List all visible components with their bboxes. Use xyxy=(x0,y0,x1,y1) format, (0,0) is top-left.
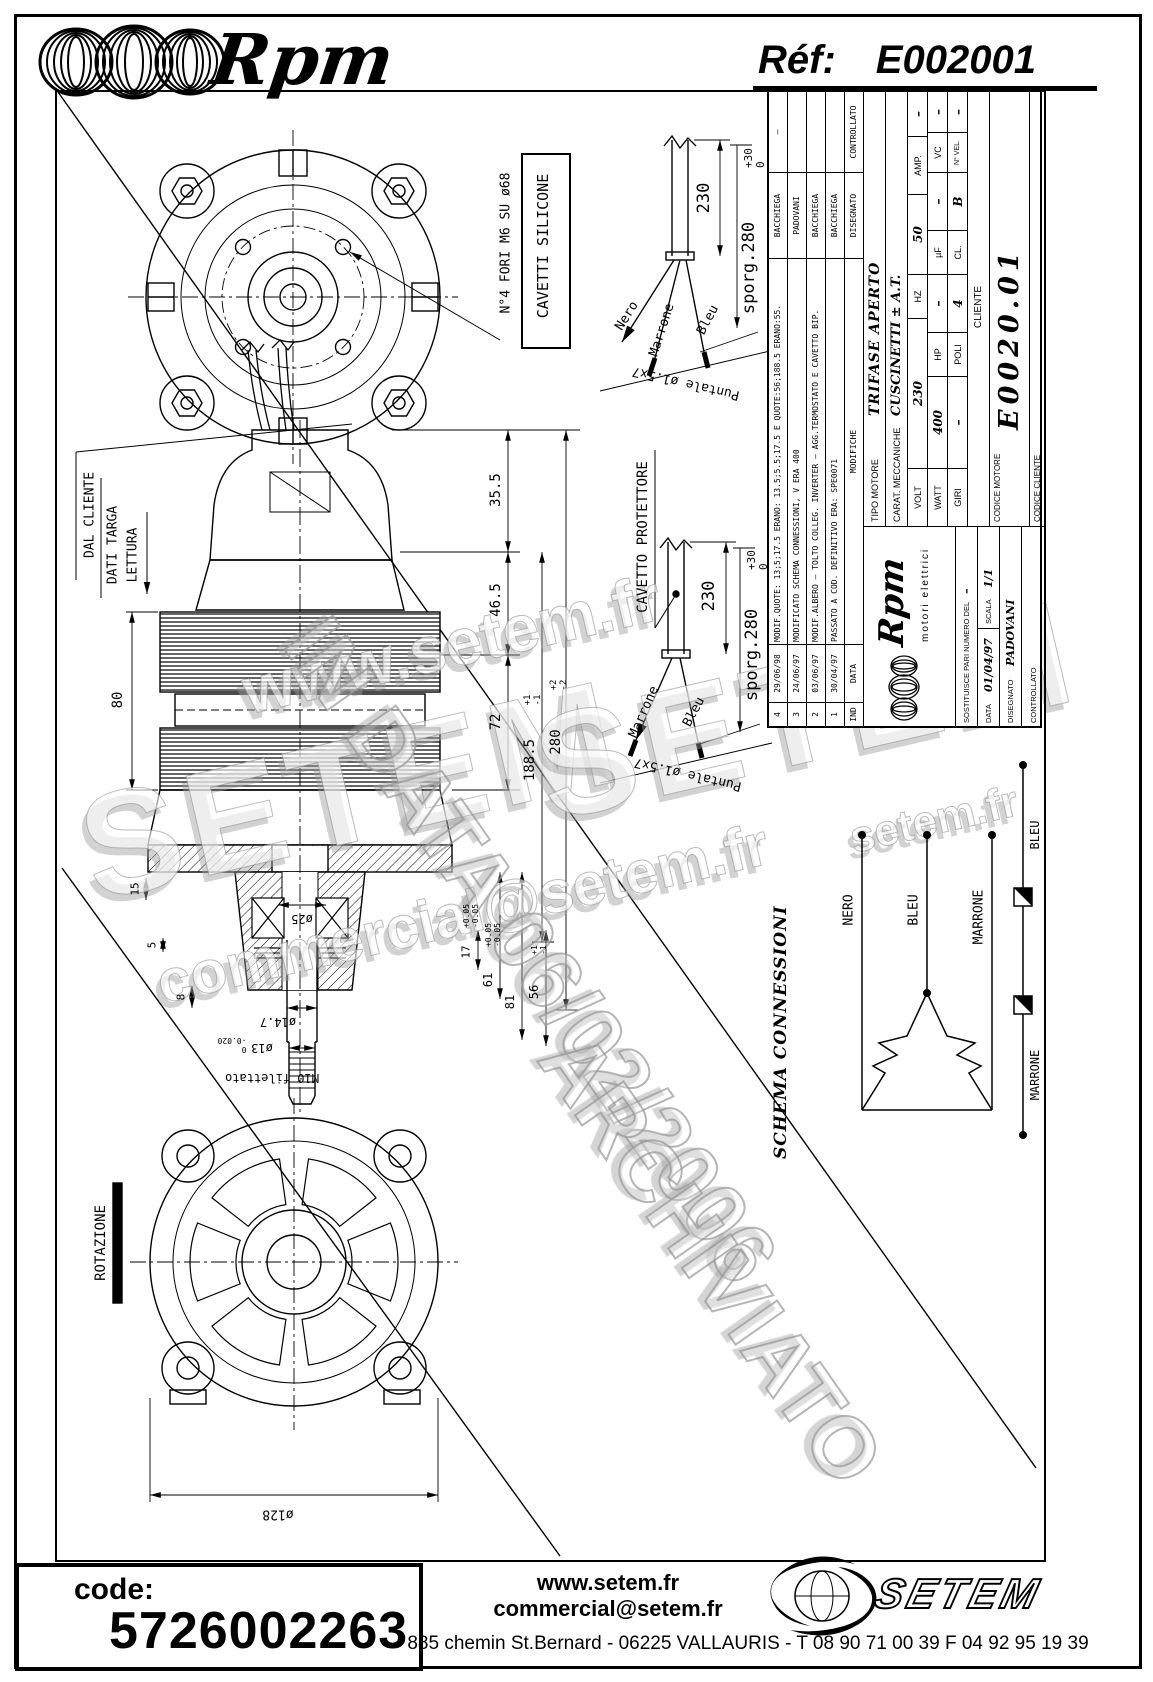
dim-5: 5 xyxy=(146,942,159,949)
elec-value: – xyxy=(928,172,947,230)
disegnato-value: PADOVANI xyxy=(1004,600,1017,666)
data-label: DATA xyxy=(984,692,993,726)
dim-o13: ø13 xyxy=(251,1041,273,1055)
data-value: 01/04/97 xyxy=(978,628,999,692)
footer-address: 885 chemin St.Bernard - 06225 VALLAURIS … xyxy=(407,1633,1088,1655)
dati-targa-label: DATI TARGA xyxy=(106,506,121,584)
footer-website: www.setem.fr xyxy=(537,1570,679,1596)
code-value: 5726002263 xyxy=(109,1601,408,1661)
mod-ind: 1 xyxy=(826,702,845,726)
dim-35-5: 35.5 xyxy=(488,473,504,507)
mod-header-data: DATA xyxy=(845,644,864,702)
reference-number: Réf:E002001 xyxy=(758,38,1036,83)
elec-label: HZ xyxy=(908,274,927,318)
dim-o14-7: ø14.7 xyxy=(260,1015,296,1029)
elec-label: HP xyxy=(928,332,947,376)
dim-188-5: 188.5 xyxy=(522,739,538,781)
elec-label: VC xyxy=(928,132,947,172)
mod-text: MODIFICATO SCHEMA CONNESSIONI, V ERA 400 xyxy=(788,258,807,644)
schema-wire-nero: NERO xyxy=(842,894,857,925)
title-block: 4 29/06/98 MODIF.QUOTE: 13;5;17.5 ERANO:… xyxy=(767,90,1042,728)
sostituisce-value: – xyxy=(960,588,973,594)
dim-81: 81 xyxy=(503,995,517,1009)
carat-meccaniche-value: CUSCINETTI ± A.T. xyxy=(889,275,904,416)
mod-date: 03/06/97 xyxy=(807,644,826,702)
mod-ind: 3 xyxy=(788,702,807,726)
dim-280-tol: +2 -2 xyxy=(550,680,570,691)
dim-o128: ø128 xyxy=(262,1507,293,1522)
schema-prot-bleu: BLEU xyxy=(1028,821,1042,850)
mod-text: MODIF.ALBERO – TOLTO COLLEG. INVERTER – … xyxy=(807,258,826,644)
mod-ctrl xyxy=(788,92,807,172)
dim-61-tol: +0.05 -0.05 xyxy=(485,923,503,947)
cable2-title: CAVETTO PROTETTORE xyxy=(635,461,651,613)
elec-value: – xyxy=(948,92,967,132)
mod-ctrl xyxy=(807,92,826,172)
setem-logo-text: SETEM xyxy=(870,1570,1047,1618)
elec-value: 50 xyxy=(908,194,927,274)
dim-188-5-tol: +1 -1 xyxy=(524,695,544,706)
code-box: code: 5726002263 xyxy=(15,1563,423,1671)
schema-wire-bleu: BLEU xyxy=(907,894,922,925)
cliente-label: CLIENTE xyxy=(973,286,984,332)
schema-prot-marrone: MARRONE xyxy=(1028,1050,1042,1101)
elec-value: 400 xyxy=(928,376,947,468)
elec-value: – xyxy=(928,274,947,332)
elec-value: – xyxy=(908,92,927,136)
disegnato-label: DISEGNATO xyxy=(1006,666,1015,726)
cavetti-silicone-box: CAVETTI SILICONE xyxy=(521,153,571,349)
ref-value: E002001 xyxy=(876,38,1036,82)
mod-ctrl: – xyxy=(769,92,788,172)
cavetti-silicone-label: CAVETTI SILICONE xyxy=(534,174,552,319)
lettura-label: LETTURA xyxy=(126,528,141,583)
cable1-dim-230: 230 xyxy=(694,183,714,214)
dim-17-tol: +0.05 -0.05 xyxy=(463,904,481,928)
dim-280: 280 xyxy=(548,729,564,754)
scala-value: 1/1 xyxy=(982,569,995,588)
dim-61: 61 xyxy=(481,973,495,987)
dim-46-5: 46.5 xyxy=(488,583,504,617)
elec-value: – xyxy=(928,92,947,132)
modifications-table: 4 29/06/98 MODIF.QUOTE: 13;5;17.5 ERANO:… xyxy=(769,92,864,726)
schema-wire-marrone: MARRONE xyxy=(972,890,987,945)
codice-motore-value: E0020.01 xyxy=(994,247,1025,430)
mod-date: 29/06/98 xyxy=(769,644,788,702)
drawing-sheet: www.setem.fr SETEM SETEM commercial@sete… xyxy=(0,0,1153,1682)
cable1-sporg: sporg.280 xyxy=(739,222,759,314)
mod-text: PASSATO A COD. DEFINITIVO ERA: SPE0071 xyxy=(826,258,845,644)
mod-header-ind: IND xyxy=(845,702,864,726)
dim-56-tol: +1 -1 xyxy=(531,945,549,955)
rotazione-label: ROTAZIONE xyxy=(93,1205,109,1281)
mod-header-controllato: CONTROLLATO xyxy=(845,92,864,172)
schema-connessioni: SCHEMA CONNESSIONI xyxy=(767,740,1042,1165)
dim-56: 56 xyxy=(527,985,541,999)
titleblock-brand-sub: motori elettrici xyxy=(920,548,931,642)
elec-value: B xyxy=(948,172,967,230)
mod-ctrl xyxy=(826,92,845,172)
elec-label: N° VEL. xyxy=(948,132,967,172)
elec-label: POLI xyxy=(948,332,967,376)
dim-72: 72 xyxy=(488,714,504,731)
mod-text: MODIF.QUOTE: 13;5;17.5 ERANO: 13.5;5.5;1… xyxy=(769,258,788,644)
elec-value: 4 xyxy=(948,274,967,332)
elec-value: 230 xyxy=(908,318,927,468)
mod-date: 24/06/97 xyxy=(788,644,807,702)
mod-header-modifiche: MODIFICHE xyxy=(845,258,864,644)
ref-label: Réf: xyxy=(758,38,836,82)
elec-label: WATT xyxy=(928,468,947,526)
mod-ind: 4 xyxy=(769,702,788,726)
tipo-motore-value: TRIFASE APERTO xyxy=(867,262,883,416)
titleblock-logo: Rpm motori elettrici xyxy=(864,527,956,726)
dim-o25: ø25 xyxy=(291,912,313,926)
m10-label: M10 filettato xyxy=(225,1071,319,1085)
codice-cliente-label: CODICE CLIENTE xyxy=(1033,455,1042,526)
elec-label: VOLT xyxy=(908,468,927,526)
elec-value: – xyxy=(948,376,967,468)
brand-logo-text: Rpm xyxy=(206,18,399,101)
carat-meccaniche-label: CARAT. MECCANICHE xyxy=(892,416,902,526)
dim-o13-tol: 0 -0.020 xyxy=(218,1035,247,1053)
dim-8: 8 xyxy=(175,994,188,1001)
mod-ind: 2 xyxy=(807,702,826,726)
dim-17: 17 xyxy=(460,945,473,958)
tipo-motore-label: TIPO MOTORE xyxy=(870,416,880,526)
controllato-label: CONTROLLATO xyxy=(1029,667,1038,726)
mod-dis: BACCHIEGA xyxy=(826,172,845,258)
elec-label: GIRI xyxy=(948,468,967,526)
schema-circuit xyxy=(827,740,1042,1165)
dal-cliente-label: DAL CLIENTE xyxy=(83,472,98,558)
mod-date: 30/04/97 xyxy=(826,644,845,702)
schema-title: SCHEMA CONNESSIONI xyxy=(771,905,791,1159)
elec-label: µF xyxy=(928,230,947,274)
titleblock-brand: Rpm xyxy=(872,555,912,649)
flange-holes-note: N°4 FORI M6 SU ø68 xyxy=(499,173,514,314)
codice-motore-label: CODICE MOTORE xyxy=(990,430,1002,526)
mod-dis: PADOVANI xyxy=(788,172,807,258)
scala-label: SCALA xyxy=(984,588,993,628)
dim-80: 80 xyxy=(110,692,126,709)
cable2-dim-230: 230 xyxy=(699,581,719,612)
mod-dis: BACCHIEGA xyxy=(807,172,826,258)
sostituisce-label: SOSTITUISCE PARI NUMERO DEL xyxy=(962,602,971,726)
dim-15: 15 xyxy=(129,882,142,895)
mod-header-disegnato: DISEGNATO xyxy=(845,172,864,258)
cable1-sporg-tol: +30 0 xyxy=(743,148,767,168)
elec-label: AMP. xyxy=(908,136,927,194)
footer-email: commercial@setem.fr xyxy=(493,1596,722,1622)
cable2-sporg: sporg.280 xyxy=(742,609,762,701)
elec-label: CL. xyxy=(948,230,967,274)
mod-dis: BACCHIEGA xyxy=(769,172,788,258)
